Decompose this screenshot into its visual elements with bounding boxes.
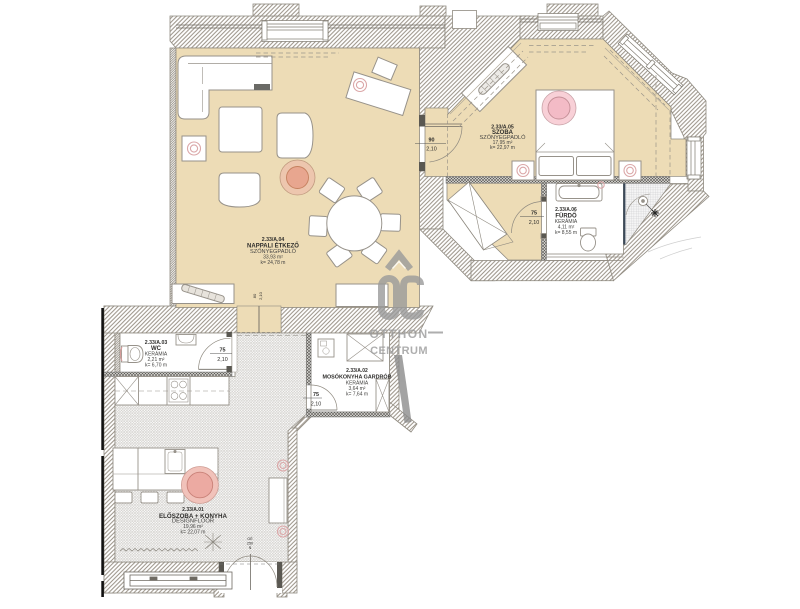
svg-text:2,10: 2,10 (258, 291, 263, 300)
svg-text:2,10: 2,10 (426, 147, 437, 153)
svg-text:k= 8,55 m: k= 8,55 m (555, 230, 577, 236)
svg-text:75: 75 (220, 348, 226, 354)
svg-text:k= 7,64 m: k= 7,64 m (346, 392, 368, 398)
svg-text:OTTHON: OTTHON (369, 327, 428, 341)
svg-text:250: 250 (247, 542, 253, 546)
svg-text:80: 80 (252, 293, 257, 298)
svg-text:2.33/A.06: 2.33/A.06 (555, 207, 577, 213)
svg-text:↯: ↯ (248, 546, 251, 550)
svg-text:2,10: 2,10 (529, 220, 540, 226)
svg-text:k= 22,97 m: k= 22,97 m (490, 145, 515, 151)
svg-text:75: 75 (313, 392, 319, 398)
svg-text:90: 90 (429, 138, 435, 144)
svg-text:k= 24,78 m: k= 24,78 m (261, 260, 286, 266)
svg-text:k= 22,07 m: k= 22,07 m (181, 530, 206, 536)
svg-text:MOSÓKONYHA GARDRÓB: MOSÓKONYHA GARDRÓB (323, 373, 392, 381)
svg-text:2,10: 2,10 (311, 402, 322, 408)
svg-text:k= 6,70 m: k= 6,70 m (145, 363, 167, 369)
svg-text:75: 75 (531, 211, 537, 217)
svg-text:2.33/A.02: 2.33/A.02 (346, 368, 368, 374)
svg-text:2.33/A.04: 2.33/A.04 (262, 237, 285, 243)
svg-text:GÉ: GÉ (247, 536, 253, 541)
svg-text:2,10: 2,10 (217, 357, 228, 363)
